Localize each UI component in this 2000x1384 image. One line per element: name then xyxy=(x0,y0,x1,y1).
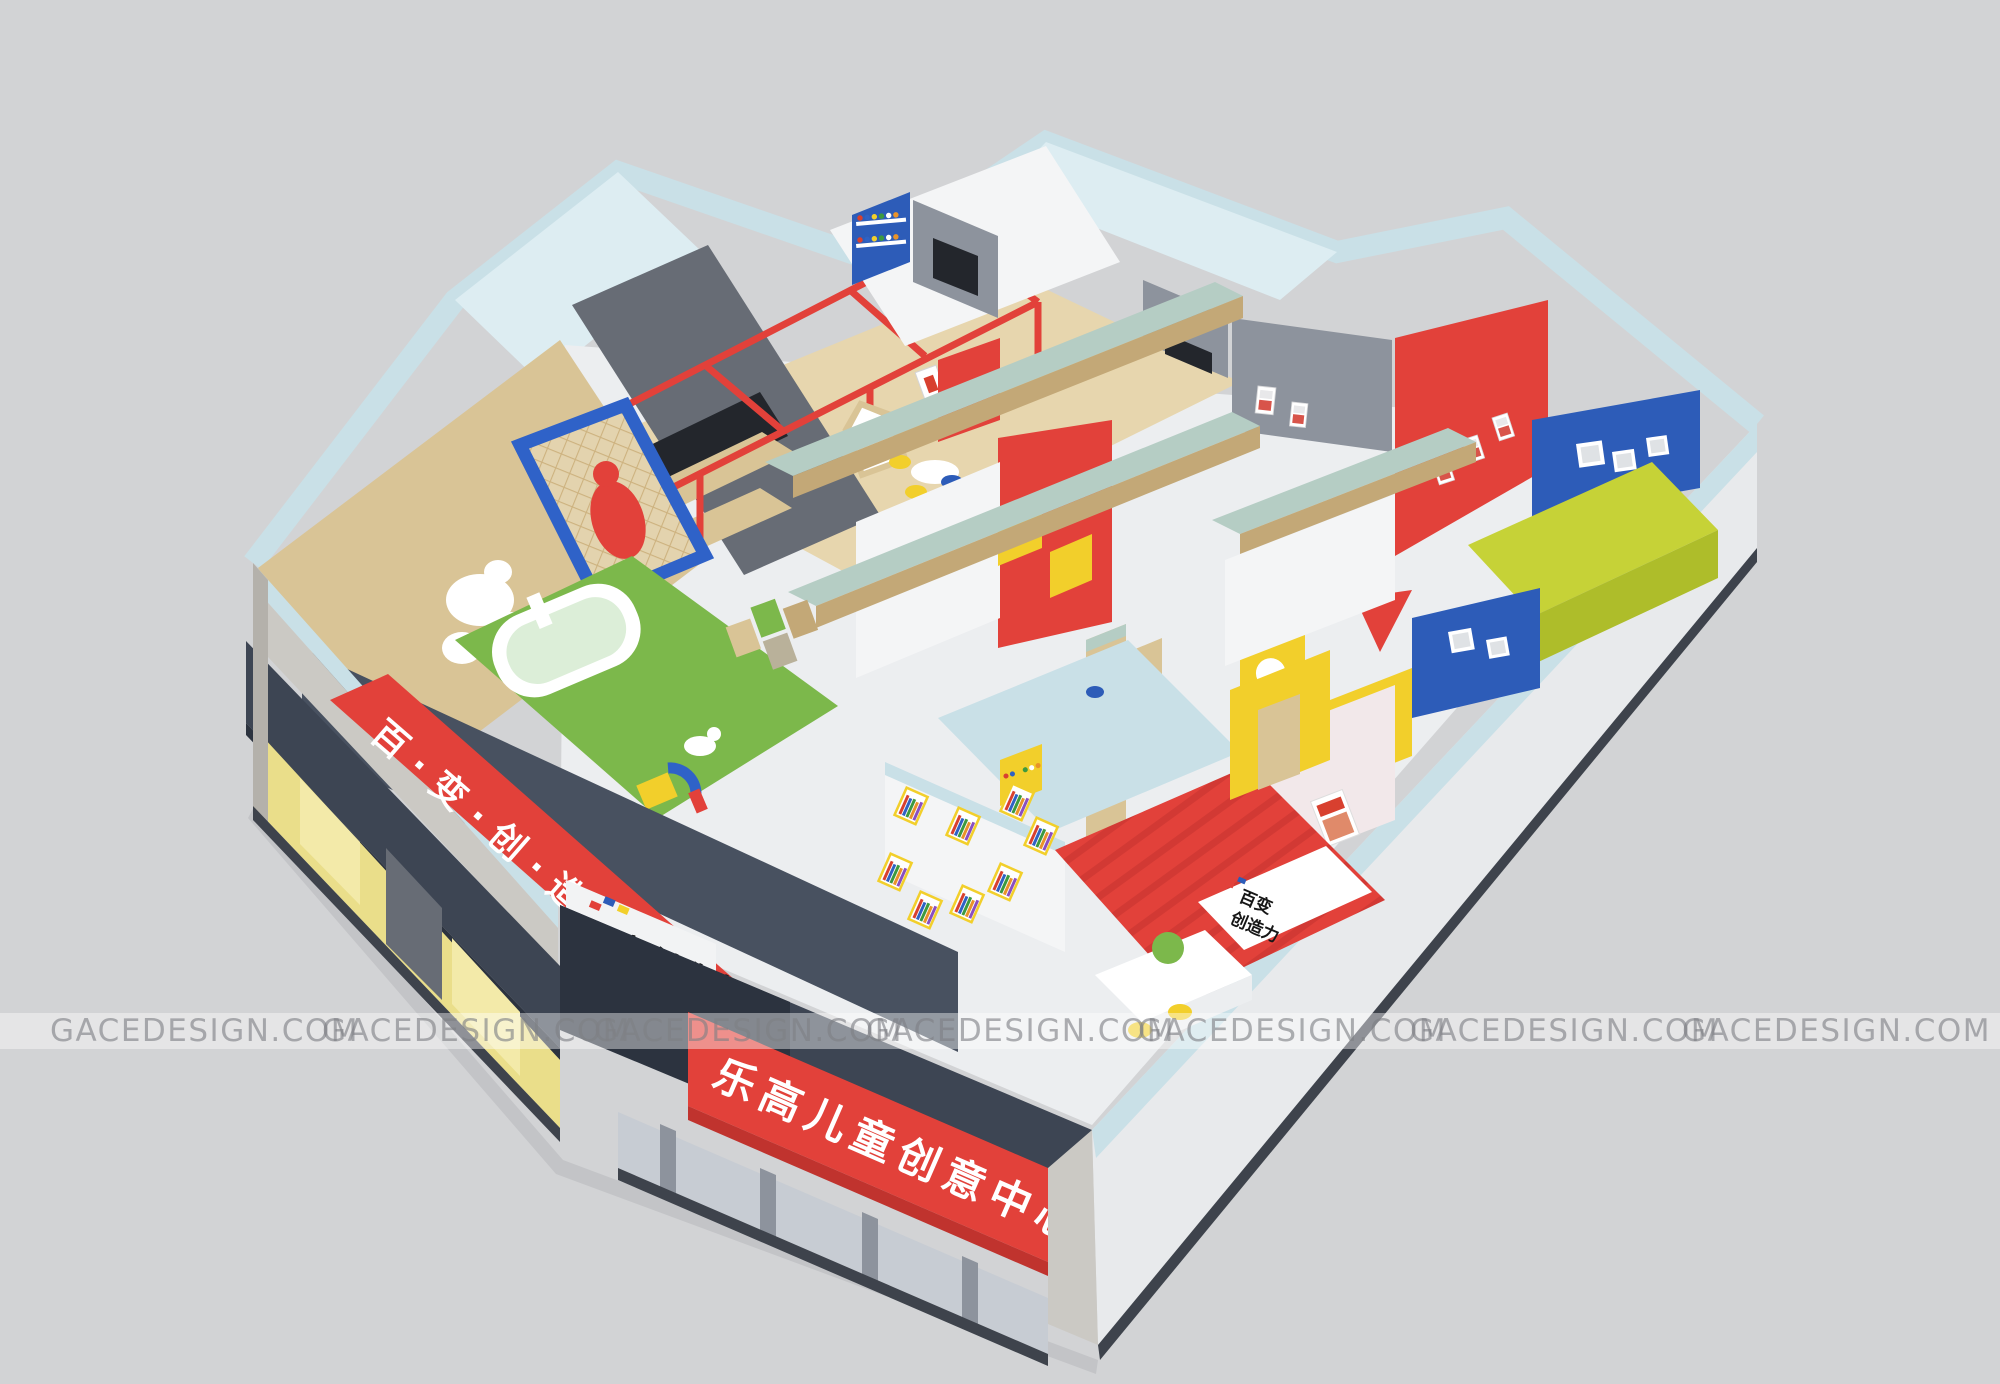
watermark-text: GACEDESIGN.COM xyxy=(1682,1013,1991,1049)
display-cube xyxy=(1612,449,1637,472)
watermark-text: GACEDESIGN.COM xyxy=(594,1013,903,1049)
door-frame xyxy=(862,1212,878,1284)
interior-cutaway-render: 百变 创造力 百·变·创·造·力 xyxy=(0,0,2000,1384)
plant xyxy=(1152,932,1184,964)
red-figure-head xyxy=(593,461,619,487)
door-frame xyxy=(660,1124,676,1196)
door-frame xyxy=(962,1256,978,1328)
dog-head xyxy=(707,727,721,741)
display-cube xyxy=(1448,628,1475,653)
watermark-text: GACEDESIGN.COM xyxy=(322,1013,631,1049)
render-canvas: 百变 创造力 百·变·创·造·力 xyxy=(0,0,2000,1384)
display-cube xyxy=(1646,435,1669,457)
watermark-text: GACEDESIGN.COM xyxy=(1410,1013,1719,1049)
blue-chair xyxy=(1086,686,1104,698)
display-cube xyxy=(1576,440,1605,467)
display-cube xyxy=(1486,636,1510,659)
watermark-text: GACEDESIGN.COM xyxy=(866,1013,1175,1049)
watermark-text: GACEDESIGN.COM xyxy=(50,1013,359,1049)
front-corner-column xyxy=(1048,1130,1098,1345)
reception-door xyxy=(1258,694,1300,790)
door-frame xyxy=(760,1168,776,1240)
silhouette-part xyxy=(484,560,512,584)
watermark-text: GACEDESIGN.COM xyxy=(1138,1013,1447,1049)
wall-poster xyxy=(1289,402,1307,428)
left-corner-column xyxy=(253,563,268,822)
wall-poster xyxy=(1255,386,1276,415)
watermark-band: GACEDESIGN.COM GACEDESIGN.COM GACEDESIGN… xyxy=(0,1013,2000,1049)
